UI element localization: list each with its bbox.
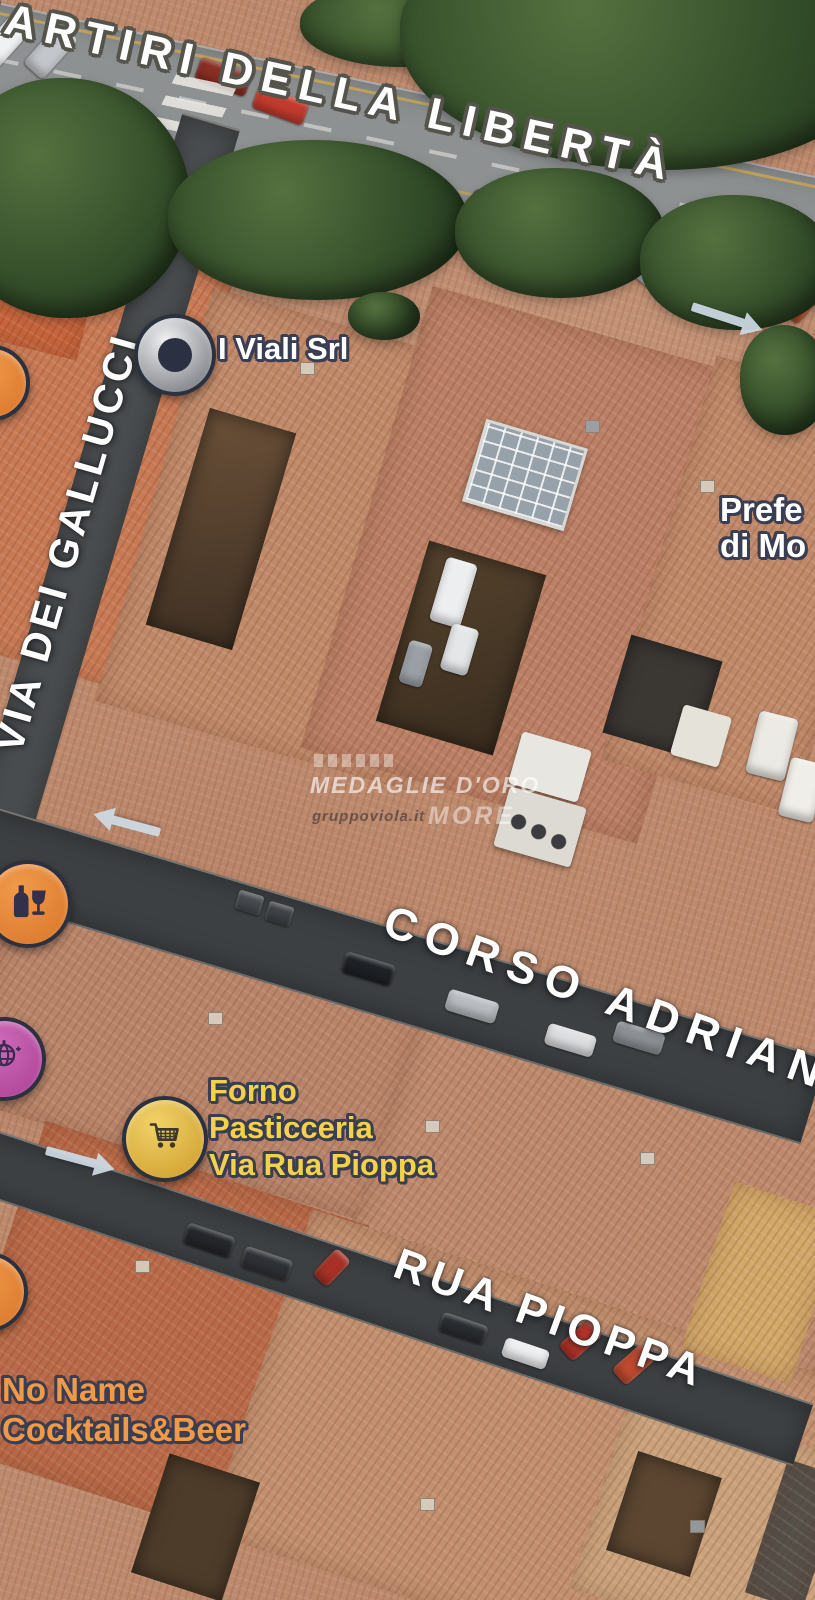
poi-label-prefettura[interactable]: Prefe di Mo [720, 492, 806, 565]
parked-car [182, 1222, 236, 1259]
satellite-map: MEDAGLIE D'ORO gruppoviola.it MORE MARTI… [0, 0, 815, 1600]
shopping-cart-icon [141, 1113, 189, 1166]
tree-canopy [455, 168, 665, 298]
chimney [690, 1520, 705, 1533]
tree-canopy [640, 195, 815, 330]
chimney [640, 1152, 655, 1165]
poi-label-line: No Name [2, 1370, 246, 1410]
poi-label-forno[interactable]: Forno Pasticceria Via Rua Pioppa [209, 1072, 434, 1183]
watermark-extra: MORE [428, 802, 515, 831]
chimney [208, 1012, 223, 1025]
parked-car [543, 1023, 597, 1059]
poi-label-line: Via Rua Pioppa [209, 1146, 434, 1183]
poi-label-line: Prefe [720, 492, 806, 528]
poi-label-line: Cocktails&Beer [2, 1410, 246, 1450]
poi-marker-i-viali[interactable] [134, 314, 216, 396]
parked-car [340, 951, 396, 987]
dumpster [234, 889, 265, 916]
disco-ball-icon [0, 1034, 27, 1085]
one-way-arrow-left [111, 815, 162, 837]
tree-canopy [348, 292, 420, 340]
poi-label-line: Pasticceria [209, 1109, 434, 1146]
parked-car [239, 1245, 293, 1282]
generic-poi-icon [158, 338, 192, 372]
watermark-domain: gruppoviola.it [312, 808, 425, 825]
parked-van [429, 556, 478, 628]
poi-label-no-name[interactable]: No Name Cocktails&Beer [2, 1370, 246, 1450]
watermark: MEDAGLIE D'ORO gruppoviola.it MORE [310, 752, 650, 837]
parked-car [444, 988, 500, 1024]
chimney [700, 480, 715, 493]
wine-bottle-and-glass-icon [3, 877, 53, 932]
chimney [135, 1260, 150, 1273]
poi-label-line: Forno [209, 1072, 434, 1109]
poi-label-i-viali[interactable]: I Viali Srl [218, 332, 348, 366]
watermark-brand: MEDAGLIE D'ORO [310, 772, 540, 799]
chimney [585, 420, 600, 433]
poi-label-line: di Mo [720, 528, 806, 564]
parked-car [398, 639, 434, 688]
dumpster [264, 901, 295, 928]
parked-van [439, 623, 479, 677]
chimney [420, 1498, 435, 1511]
parked-car [312, 1248, 351, 1288]
watermark-logo-marks [314, 754, 394, 767]
tree-canopy [168, 140, 468, 300]
poi-marker-forno[interactable] [122, 1096, 208, 1182]
